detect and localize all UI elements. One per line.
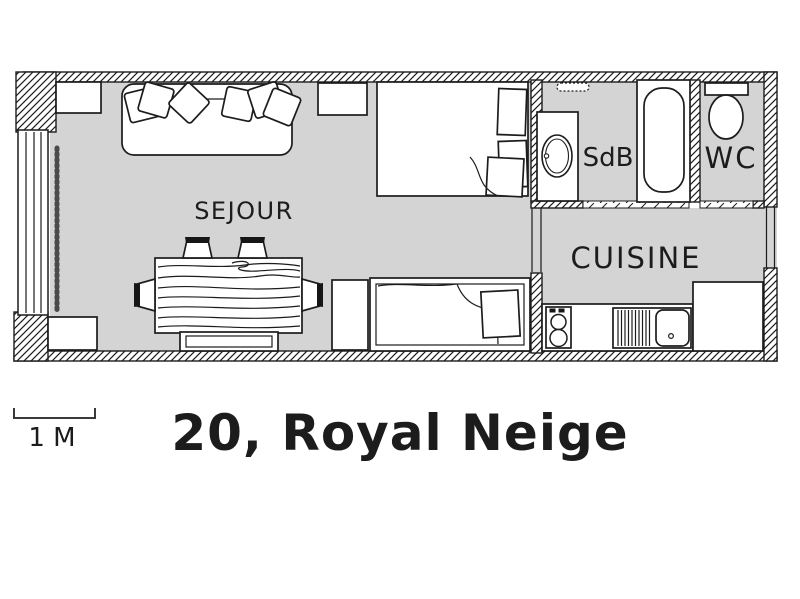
- stove-icon: [546, 307, 571, 348]
- door-opening-wc: [700, 201, 753, 208]
- fridge-icon: [693, 282, 763, 351]
- nightstand-icon: [332, 280, 368, 350]
- washbasin-icon: [537, 112, 578, 201]
- wall-right-upper: [764, 72, 777, 207]
- double-bed-icon: [377, 82, 528, 197]
- page-title: 20, Royal Neige: [171, 404, 628, 462]
- room-label-sejour: SEJOUR: [194, 197, 294, 225]
- pillow-icon: [481, 290, 520, 338]
- side-table-icon: [318, 83, 367, 115]
- scale-bar-icon: 1 M: [14, 408, 95, 453]
- bench-icon: [180, 332, 278, 351]
- wall-under-wc-right: [753, 201, 764, 208]
- wall-left-bottom-block: [14, 312, 48, 361]
- wall-under-sink: [531, 201, 583, 208]
- wall-left-top-block: [16, 72, 56, 132]
- room-label-cuisine: CUISINE: [570, 241, 701, 275]
- closet-icon: [56, 82, 101, 113]
- floor-plan-svg: SEJOUR SdB WC CUISINE 1 M 20, Royal Neig…: [0, 0, 800, 599]
- bathtub-icon: [637, 80, 690, 202]
- room-label-wc: WC: [705, 141, 758, 175]
- floor-passage: [531, 208, 542, 273]
- kitchen-sink-icon: [613, 308, 691, 348]
- blanket-fold-icon: [486, 157, 524, 197]
- wall-right-lower: [764, 268, 777, 361]
- cabinet-icon: [48, 317, 97, 350]
- wall-bottom: [14, 351, 777, 361]
- window-icon: [18, 130, 48, 315]
- room-label-sdb: SdB: [583, 143, 634, 173]
- pillow-icon: [497, 89, 527, 136]
- sofa-icon: [122, 81, 302, 155]
- wall-sejour-cuisine: [531, 273, 542, 353]
- scale-bar-label: 1 M: [28, 423, 75, 453]
- vent-icon: [557, 83, 589, 91]
- floor-plan-page: SEJOUR SdB WC CUISINE 1 M 20, Royal Neig…: [0, 0, 800, 599]
- single-bed-icon: [370, 278, 530, 351]
